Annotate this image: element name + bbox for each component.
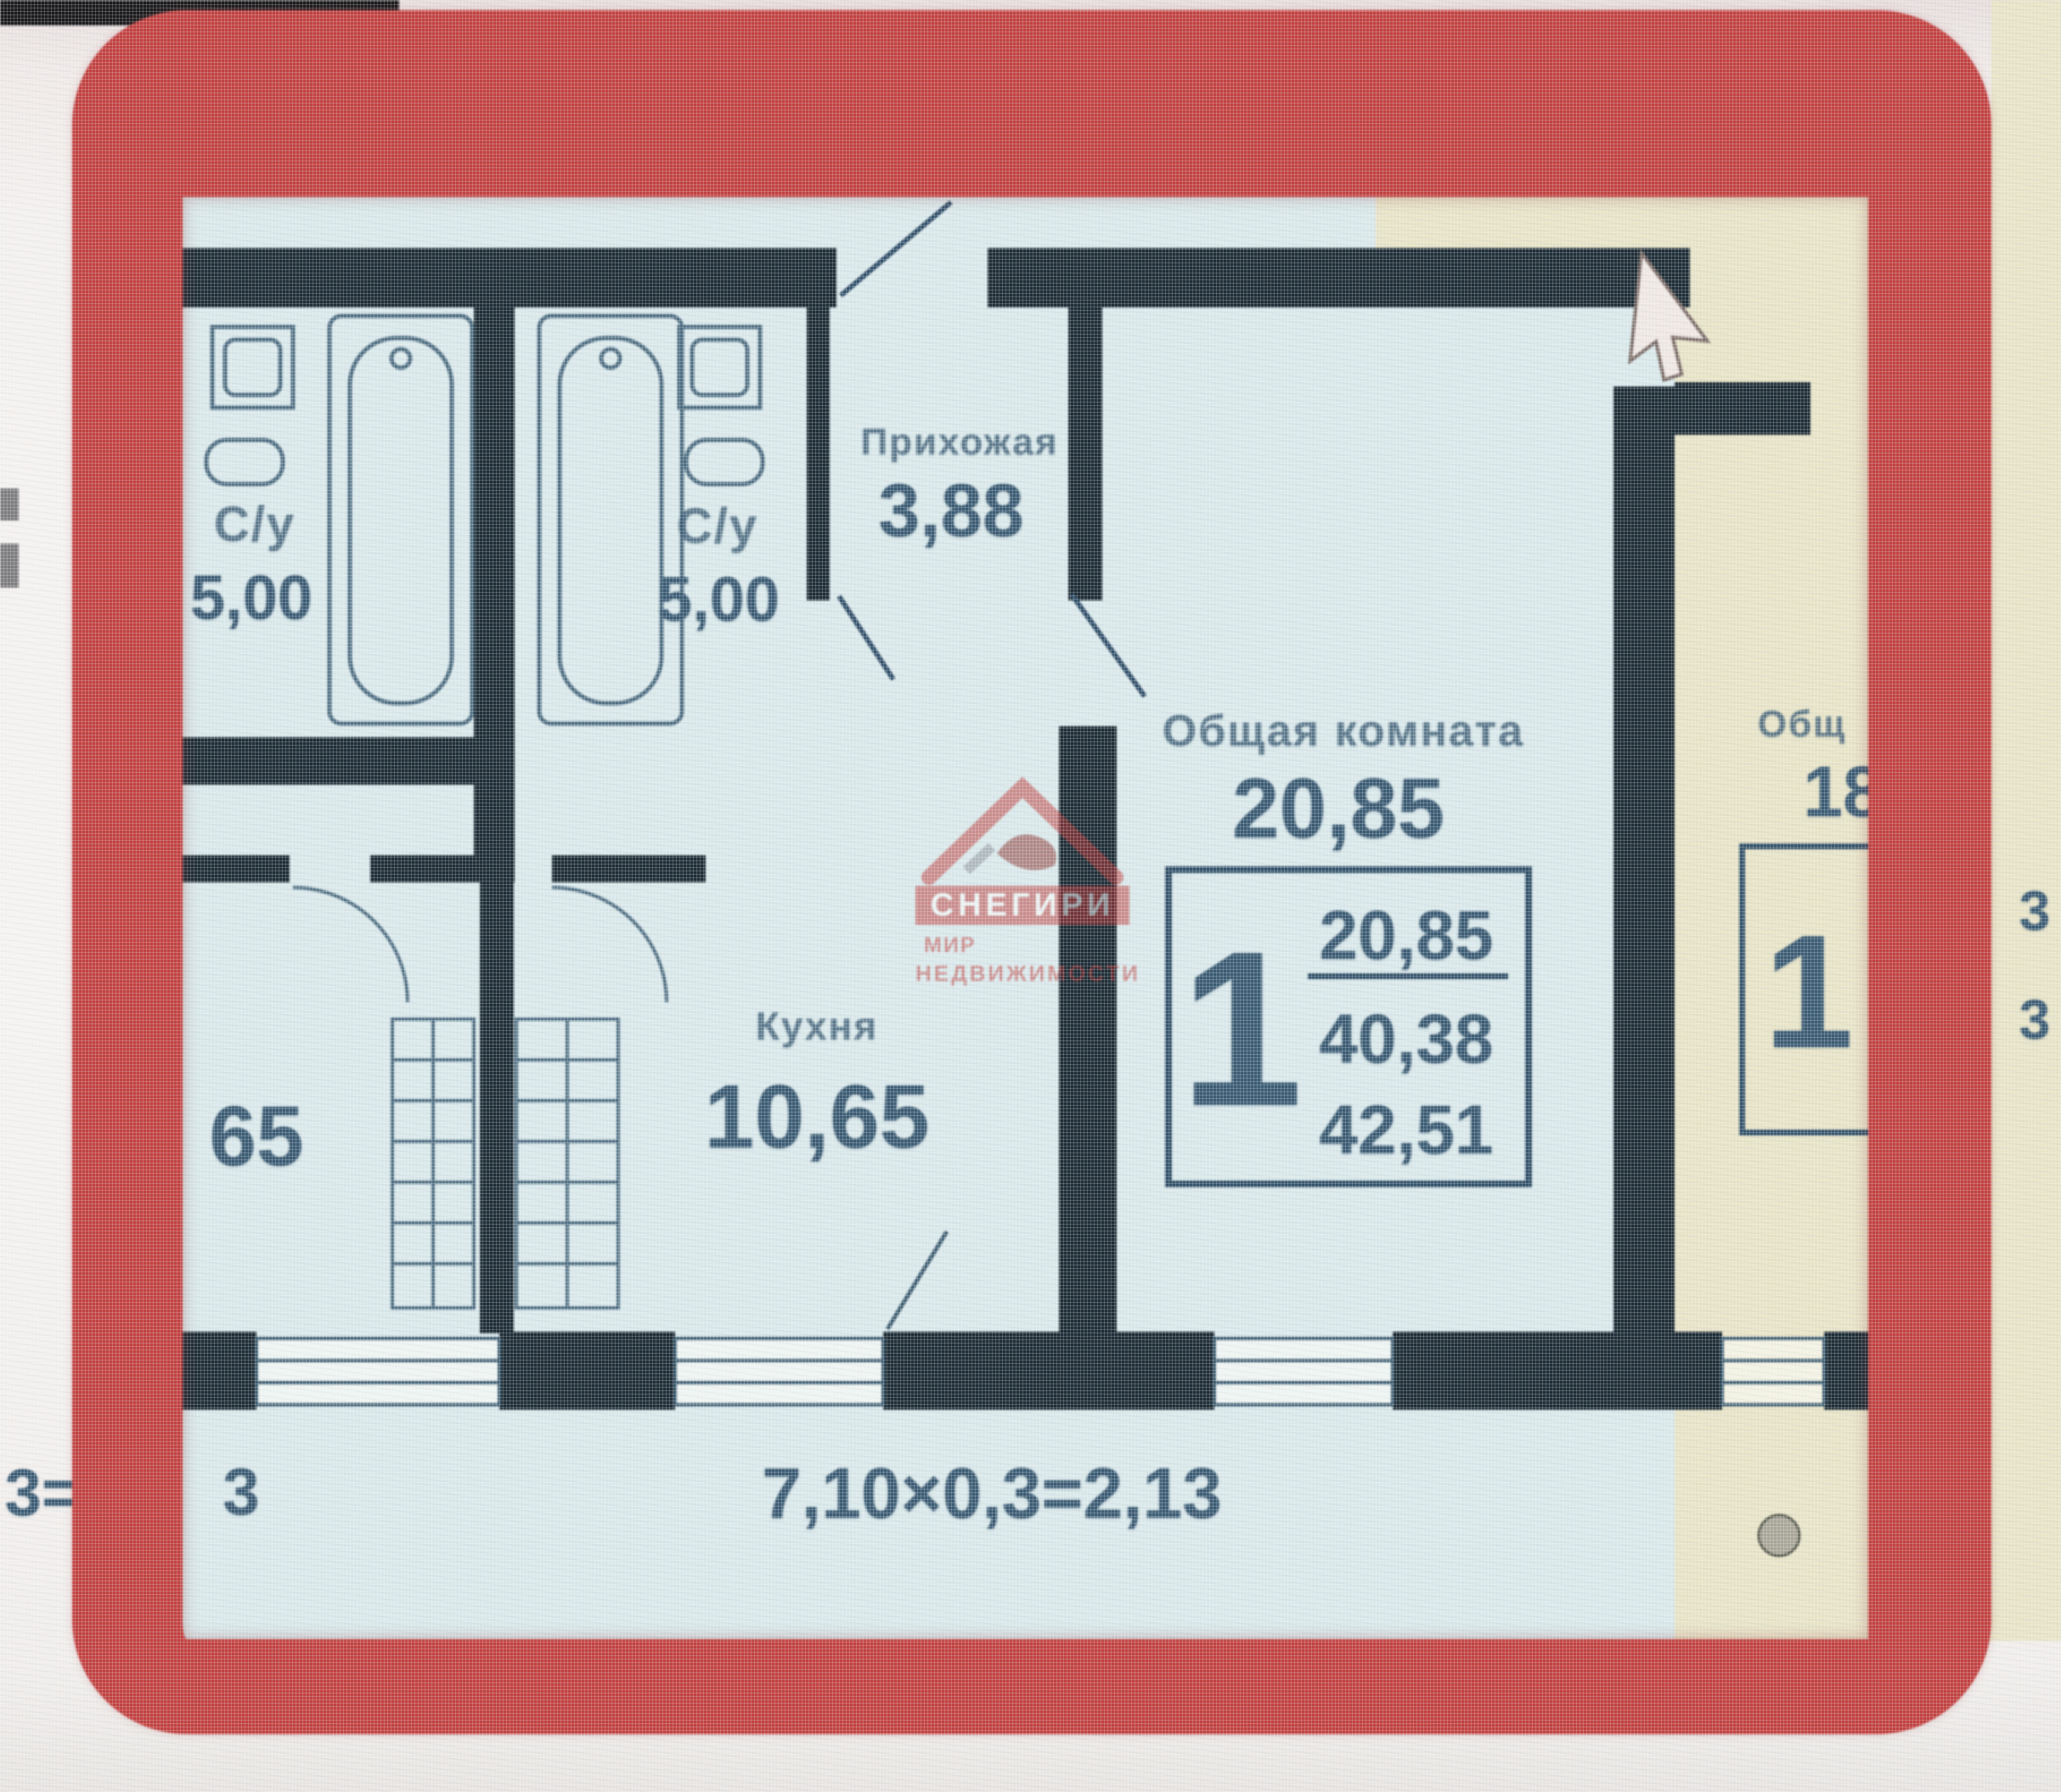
left-dimension-fragment: 3= xyxy=(5,1459,81,1525)
right-fragment-top: 3 xyxy=(2019,882,2051,938)
screen-photo: С/у 5,00 65 3= 3 С/у 5,00 Прихожая 3,88 … xyxy=(0,0,2061,1792)
mouse-cursor-icon xyxy=(1621,249,1721,405)
right-fragment-bottom: 3 xyxy=(2019,991,2051,1047)
